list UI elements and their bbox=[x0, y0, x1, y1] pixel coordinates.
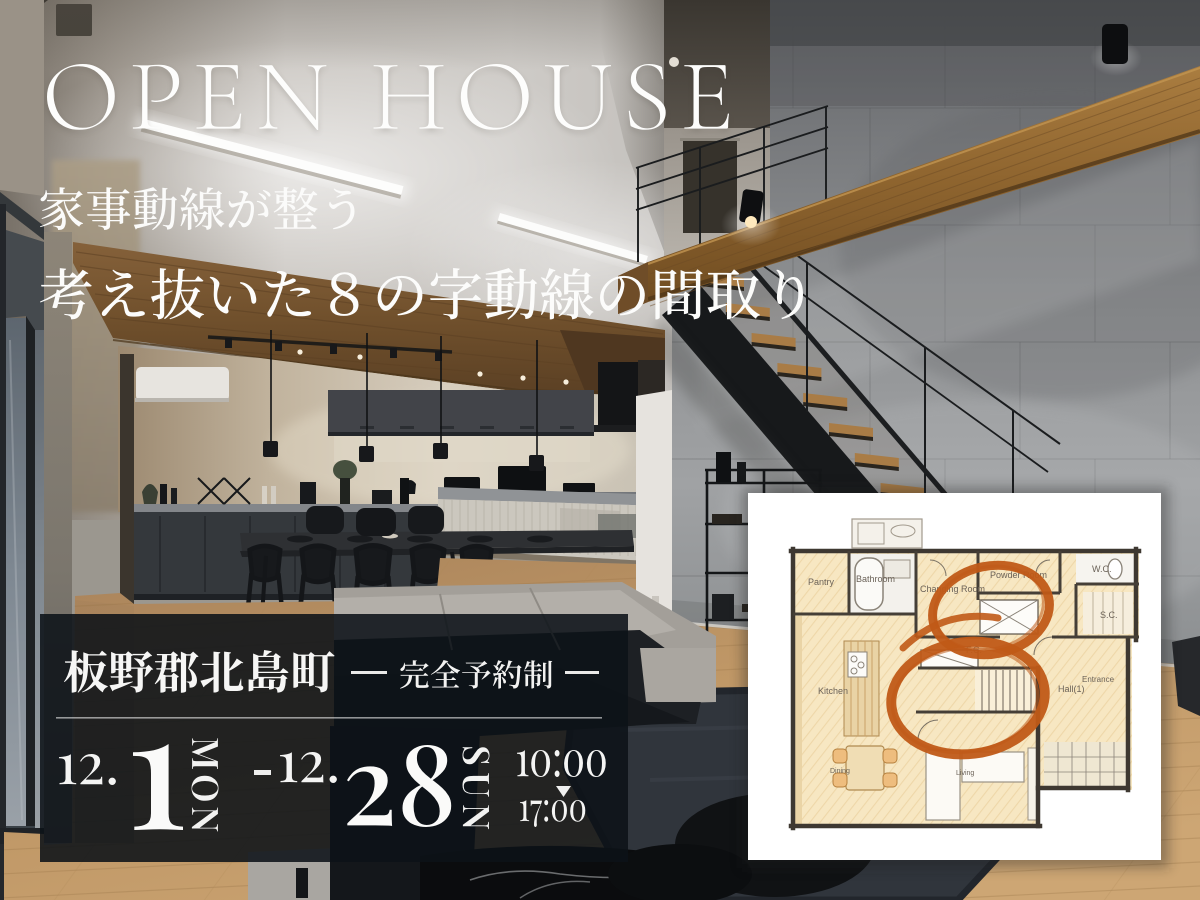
svg-text:W.C.: W.C. bbox=[1092, 564, 1112, 574]
svg-text:Living: Living bbox=[956, 770, 974, 777]
svg-text:Bathroom: Bathroom bbox=[856, 574, 895, 584]
svg-text:Pantry: Pantry bbox=[808, 577, 835, 587]
svg-text:Entrance: Entrance bbox=[1082, 675, 1115, 684]
svg-text:Hall(1): Hall(1) bbox=[1058, 684, 1085, 694]
svg-text:Kitchen: Kitchen bbox=[818, 686, 848, 696]
svg-text:Dining: Dining bbox=[830, 768, 850, 775]
svg-text:S.C.: S.C. bbox=[1100, 610, 1118, 620]
